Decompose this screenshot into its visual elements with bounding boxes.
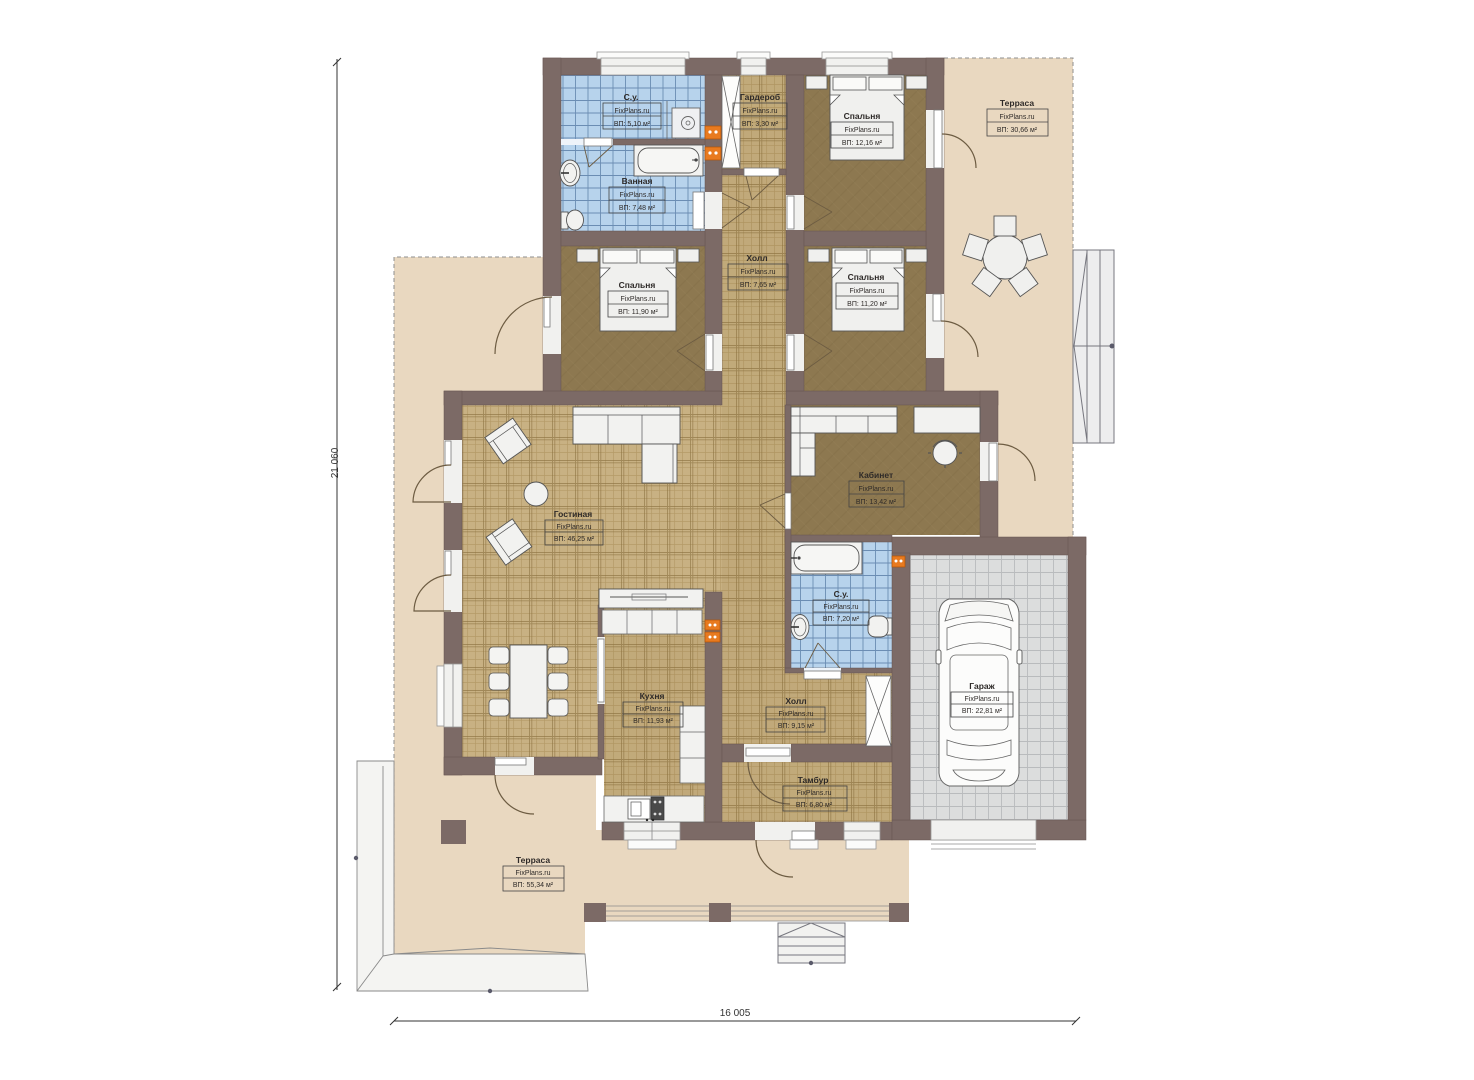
svg-text:FixPlans.ru: FixPlans.ru: [635, 706, 670, 713]
svg-text:Кухня: Кухня: [640, 691, 665, 701]
svg-text:Холл: Холл: [785, 696, 806, 706]
svg-text:ВП: 6,80 м²: ВП: 6,80 м²: [796, 802, 833, 809]
svg-text:FixPlans.ru: FixPlans.ru: [619, 192, 654, 199]
svg-text:ВП: 11,93 м²: ВП: 11,93 м²: [633, 718, 673, 725]
svg-text:Кабинет: Кабинет: [859, 470, 893, 480]
svg-text:16 005: 16 005: [720, 1008, 751, 1019]
svg-text:ВП: 46,25 м²: ВП: 46,25 м²: [554, 536, 595, 543]
svg-text:ВП: 3,30 м²: ВП: 3,30 м²: [742, 121, 779, 128]
svg-text:ВП: 12,16 м²: ВП: 12,16 м²: [842, 140, 883, 147]
svg-text:FixPlans.ru: FixPlans.ru: [844, 127, 879, 134]
svg-text:ВП: 30,66 м²: ВП: 30,66 м²: [997, 127, 1038, 134]
svg-text:Ванная: Ванная: [622, 176, 653, 186]
svg-text:FixPlans.ru: FixPlans.ru: [614, 108, 649, 115]
svg-text:ВП: 7,65 м²: ВП: 7,65 м²: [740, 282, 777, 289]
svg-text:Тамбур: Тамбур: [798, 775, 829, 785]
svg-text:FixPlans.ru: FixPlans.ru: [778, 711, 813, 718]
svg-text:Гараж: Гараж: [969, 681, 995, 691]
svg-text:ВП: 55,34 м²: ВП: 55,34 м²: [513, 882, 554, 889]
svg-text:FixPlans.ru: FixPlans.ru: [999, 114, 1034, 121]
svg-text:Спальня: Спальня: [844, 111, 881, 121]
svg-text:Холл: Холл: [746, 253, 767, 263]
svg-text:FixPlans.ru: FixPlans.ru: [849, 288, 884, 295]
svg-text:FixPlans.ru: FixPlans.ru: [964, 696, 999, 703]
svg-text:FixPlans.ru: FixPlans.ru: [742, 108, 777, 115]
svg-text:С.у.: С.у.: [834, 589, 849, 599]
svg-text:FixPlans.ru: FixPlans.ru: [620, 296, 655, 303]
svg-text:FixPlans.ru: FixPlans.ru: [823, 604, 858, 611]
svg-text:FixPlans.ru: FixPlans.ru: [556, 524, 591, 531]
svg-text:Терраса: Терраса: [516, 855, 550, 865]
svg-text:FixPlans.ru: FixPlans.ru: [740, 269, 775, 276]
svg-text:FixPlans.ru: FixPlans.ru: [858, 486, 893, 493]
svg-text:С.у.: С.у.: [624, 92, 639, 102]
svg-text:Гостиная: Гостиная: [554, 509, 592, 519]
svg-text:ВП: 13,42 м²: ВП: 13,42 м²: [856, 499, 897, 506]
svg-text:ВП: 5,10 м²: ВП: 5,10 м²: [614, 121, 651, 128]
svg-text:Спальня: Спальня: [619, 280, 656, 290]
svg-text:Терраса: Терраса: [1000, 98, 1034, 108]
svg-text:Гардероб: Гардероб: [740, 92, 780, 102]
svg-text:ВП: 7,20 м²: ВП: 7,20 м²: [823, 616, 860, 623]
svg-text:ВП: 11,90 м²: ВП: 11,90 м²: [618, 309, 658, 316]
svg-text:ВП: 11,20 м²: ВП: 11,20 м²: [847, 301, 887, 308]
svg-text:21 060: 21 060: [330, 447, 341, 478]
svg-text:FixPlans.ru: FixPlans.ru: [515, 870, 550, 877]
svg-text:FixPlans.ru: FixPlans.ru: [796, 790, 831, 797]
svg-text:ВП: 22,81 м²: ВП: 22,81 м²: [962, 708, 1003, 715]
svg-text:ВП: 7,48 м²: ВП: 7,48 м²: [619, 205, 656, 212]
svg-text:Спальня: Спальня: [848, 272, 885, 282]
svg-text:ВП: 9,15 м²: ВП: 9,15 м²: [778, 723, 815, 730]
